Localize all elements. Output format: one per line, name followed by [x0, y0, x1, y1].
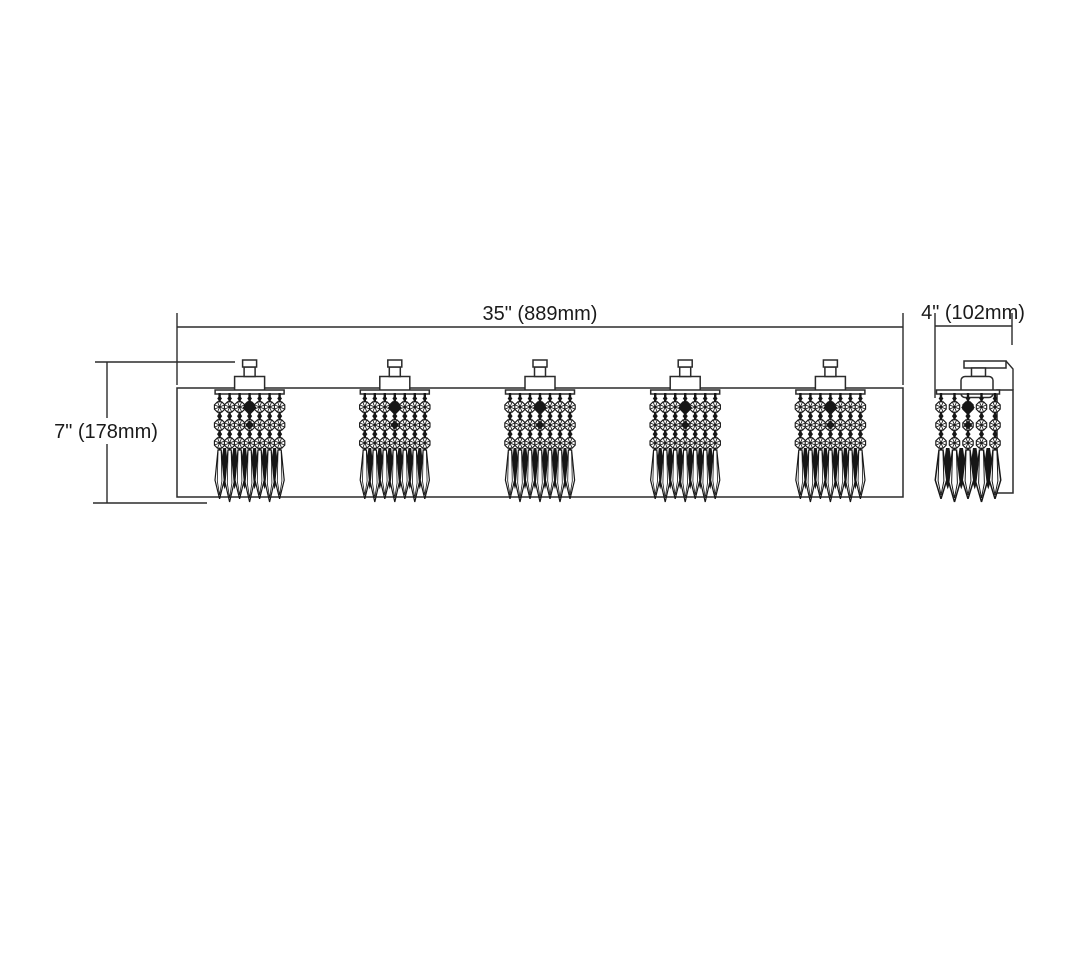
- crystal-shade: [360, 390, 430, 502]
- bead-strand: [936, 393, 946, 450]
- side-view: [935, 361, 1013, 502]
- socket-front: [235, 360, 265, 391]
- depth-dimension-label: 4" (102mm): [921, 302, 1025, 324]
- crystal-shade: [214, 390, 284, 502]
- crystal-shade-side: [935, 390, 1001, 502]
- socket-front: [380, 360, 410, 391]
- front-view: [177, 360, 903, 502]
- socket-front: [815, 360, 845, 391]
- height-dimension-label: 7" (178mm): [54, 421, 158, 443]
- width-dimension-label: 35" (889mm): [483, 303, 598, 325]
- socket-front: [525, 360, 555, 391]
- socket-front: [670, 360, 700, 391]
- bead-strand: [976, 393, 986, 450]
- crystal-shade: [650, 390, 720, 502]
- drawing-canvas: 35" (889mm) 7" (178mm) 4" (102mm): [0, 0, 1080, 976]
- bead-strand: [949, 393, 959, 450]
- crystal-shade: [505, 390, 575, 502]
- dimension-drawing: 35" (889mm) 7" (178mm) 4" (102mm): [0, 0, 1080, 976]
- crystal-shade: [795, 390, 865, 502]
